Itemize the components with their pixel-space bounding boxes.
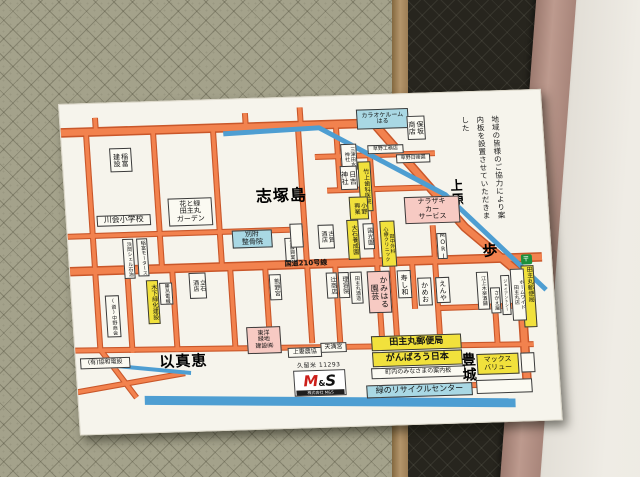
annotation-note: 地域の皆様のご協力により案内板を設置させていただきました [456, 115, 509, 226]
map-label-kameo: かめお [417, 277, 433, 305]
map-label-ono-kogyo: 小野 興業 [349, 196, 370, 220]
map-label-hamaoka-shell-sekiyu: 浜岡シェル石油 [122, 239, 136, 279]
map-label-kusano-komuten: 草野工務店 [367, 144, 404, 154]
map-label-max-valu: マックス バリュー [476, 353, 519, 375]
map-label-karaoke-haru: カラオケルーム はる [356, 108, 409, 130]
ms-logo-letter-s: S [325, 371, 337, 389]
map-label-inatomi-kensetsu: 稲富 建設 [109, 148, 133, 173]
map-label-nakano-shokai: (資)中野商会 [105, 295, 122, 337]
map-label-tanushimaru-shuzo: 田主丸酒造 [350, 272, 364, 304]
map-label-tanaka-geka-clinic: 田中外科 心療クリニック [379, 220, 397, 266]
ms-logo-letter-m: M [303, 372, 319, 390]
map-label-koga-saketen: 古賀 酒店 [317, 224, 335, 248]
map-label-hiyoshi-jinja: 日吉 神社 [340, 166, 359, 190]
map-label-inatomi-motors: 稲富モータース [136, 238, 150, 276]
map-label-midori-recycle-center: 緑のリサイクルセンター [366, 382, 473, 398]
map-label-kumano-gu: 熊野宮 [269, 274, 283, 300]
map-label-tanushimaru-post-office-notice: 田主丸郵便局 [371, 333, 462, 351]
map-label-tenmangu: 天満宮 [320, 342, 347, 353]
map-label-riyoin: 理容院 [338, 272, 351, 298]
postal-mark-icon: 〒 [520, 254, 532, 264]
map-label-route-210-label: 国道210号線 [282, 259, 331, 269]
map-label-ayumi-area: 歩 [481, 241, 500, 260]
photo-scene: 地域の皆様のご協力により案内板を設置させていただきました 〒 田主丸郵便局 久留… [0, 0, 640, 477]
map-label-toyo-ryokuchi-kensetsu: 東洋 緑地 建設㈱ [246, 326, 282, 354]
map-label-egami-sakaho: 江上木楽酒舗 [476, 272, 491, 310]
map-label-small-box-1 [289, 223, 304, 247]
map-label-shizukajima-area: 志塚島 [239, 185, 324, 208]
map-label-kamiharu-engei: かみはる 園芸 [367, 271, 393, 314]
map-label-imae-area: 以真恵 [154, 352, 213, 371]
map-label-sushi-kazu: 寿し和 [397, 270, 413, 298]
map-poster: 地域の皆様のご協力により案内板を設置させていただきました 〒 田主丸郵便局 久留… [58, 89, 563, 436]
map-labels-layer: 地域の皆様のご協力により案内板を設置させていただきました 〒 田主丸郵便局 久留… [59, 90, 562, 435]
map-label-kusano-nippoen: 草野日峰園 [396, 153, 431, 163]
map-label-kokkoen: 国光園 [362, 223, 375, 249]
ms-logo-code: 久留米 11293 [292, 359, 345, 370]
ms-logo-box: M&S 株式会社 M&S [293, 369, 347, 397]
map-label-denki-shop: 勝呂電機 [159, 283, 173, 305]
map-label-kyowa-densetsu: (有)協和電設 [80, 357, 131, 370]
map-label-ganbaro-nippon: がんばろう日本 [372, 349, 463, 367]
map-label-mori-shop: MORI [436, 233, 448, 259]
map-label-sakaeya: さかえ屋 [490, 287, 502, 313]
map-label-small-box-3 [476, 378, 533, 394]
map-label-kawai-elementary: 川会小学校 [96, 214, 151, 227]
map-label-oishi-yoseien: 大石養成園 [346, 220, 361, 260]
map-label-town-guide-note: 町内のみなさまの案内板 [371, 365, 466, 379]
map-label-tateishi-saketen: 立石 酒店 [188, 272, 207, 298]
map-label-narazaki-car-service: ナラザキ カー サービス [404, 195, 461, 224]
map-label-tsuji-shoten: 辻商店 [326, 272, 339, 298]
map-label-hosaka-shoten: 保坂 商店 [406, 115, 426, 140]
ms-logo: 久留米 11293 M&S 株式会社 M&S [292, 359, 346, 397]
map-label-small-box-2 [520, 352, 535, 372]
map-label-beppu-seikotsuin: 別府 整骨院 [232, 229, 273, 248]
map-label-toyoki-area: 豊城 [459, 350, 477, 384]
map-label-enya: えんや [435, 277, 451, 303]
map-label-kamitsuma-nokyo: 上妻農協 [288, 347, 323, 358]
map-label-hana-to-midori-garden: 花と緑 田主丸 ガーデン [167, 197, 213, 226]
